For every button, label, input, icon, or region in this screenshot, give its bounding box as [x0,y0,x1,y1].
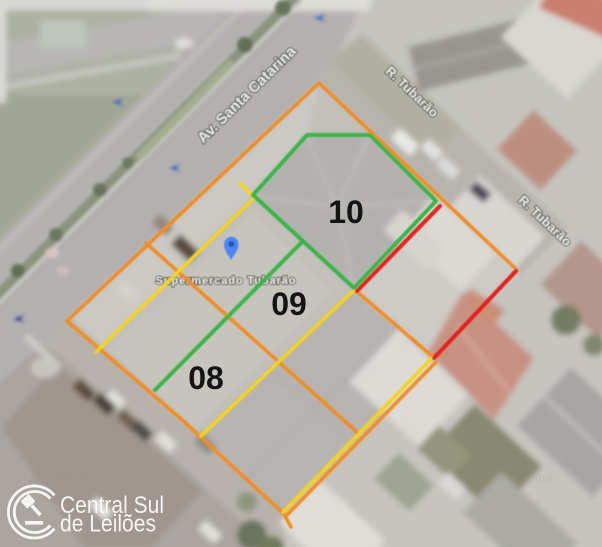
svg-text:de Leilões: de Leilões [60,511,156,538]
svg-text:10: 10 [328,194,364,230]
svg-text:08: 08 [188,360,224,396]
svg-text:09: 09 [271,286,307,322]
svg-text:2018 Google: 2018 Google [28,473,91,485]
svg-text:2018: 2018 [530,474,553,485]
